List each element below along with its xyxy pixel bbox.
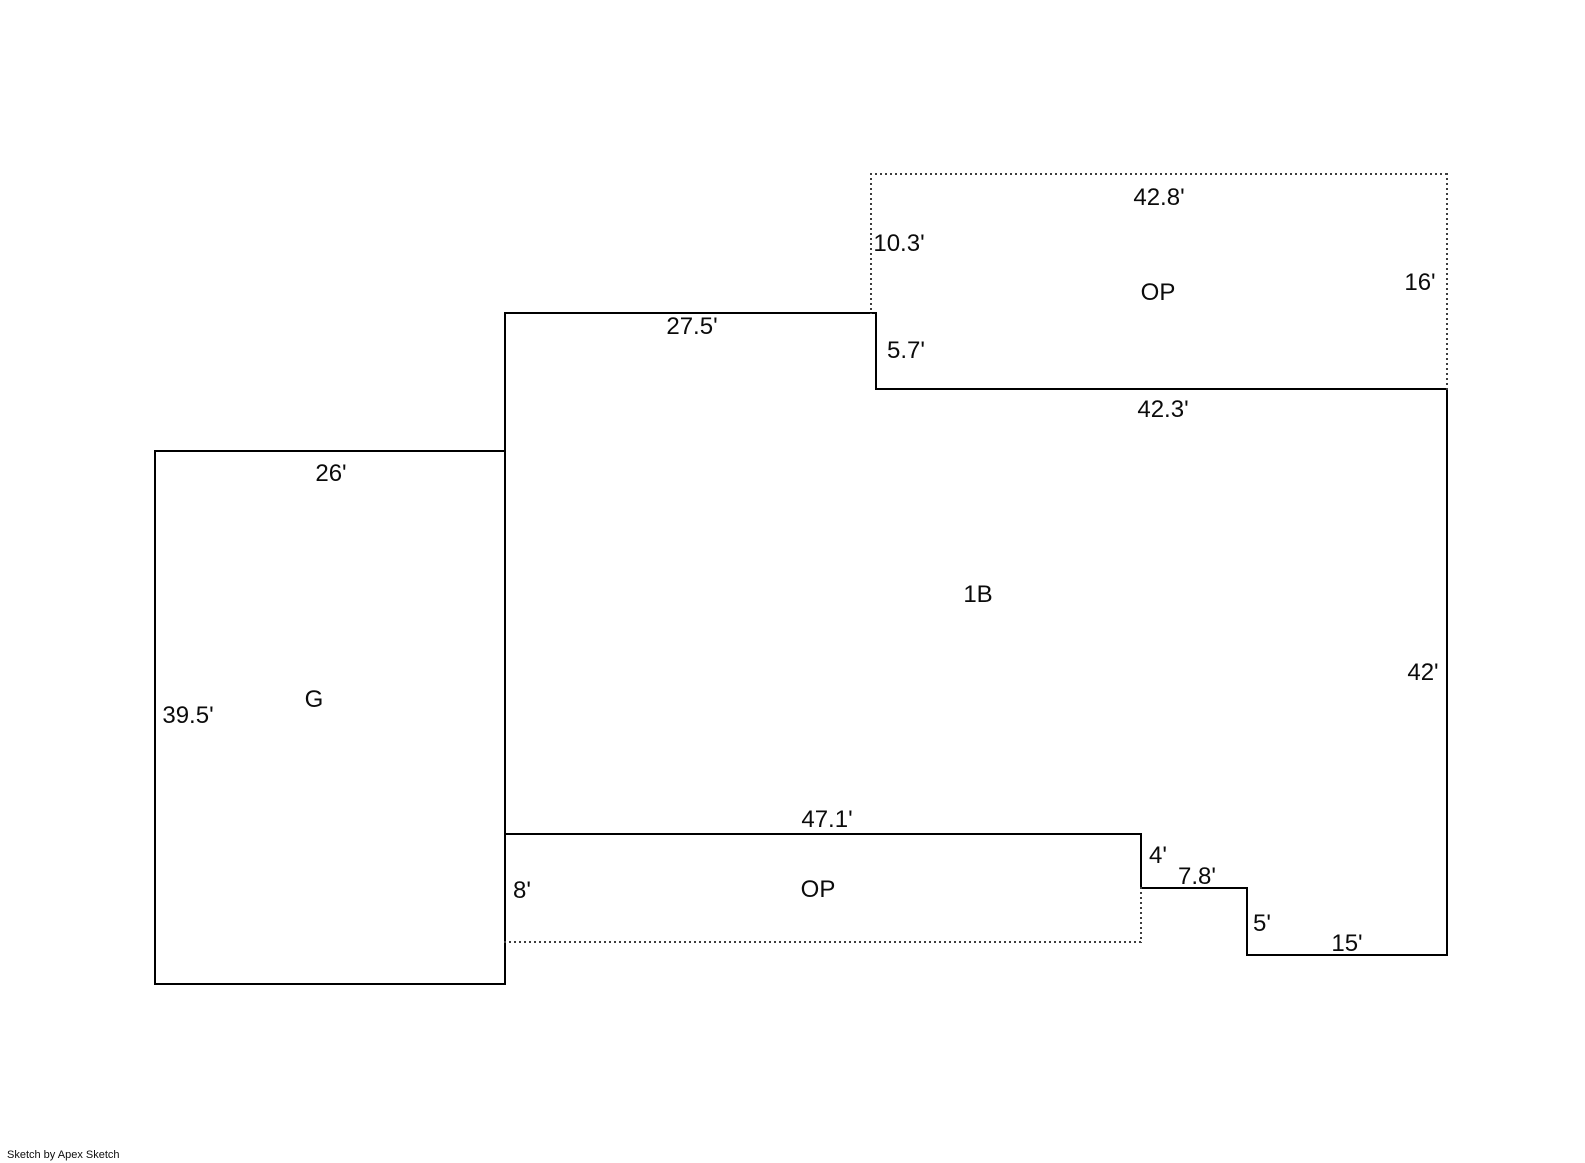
porch-lower-dotted-bottom <box>504 941 1142 943</box>
dim-porch-lower-top: 47.1' <box>801 808 852 832</box>
region-label-open-porch-lower: OP <box>801 878 836 902</box>
dim-first-story-right: 42' <box>1407 661 1438 685</box>
porch-upper-dotted-top <box>870 173 1448 175</box>
dim-first-story-right-jog: 5.7' <box>887 339 925 363</box>
dim-step-right-7-8: 7.8' <box>1178 865 1216 889</box>
dim-porch-lower-left: 8' <box>513 879 531 903</box>
wall-first-story-upper-right <box>875 388 1448 390</box>
footer-credit: Sketch by Apex Sketch <box>7 1149 120 1161</box>
porch-upper-dotted-left <box>870 173 872 314</box>
wall-first-story-left <box>504 312 506 985</box>
floor-plan-sketch: 42.8' 10.3' 16' 27.5' 5.7' 42.3' 26' 42'… <box>0 0 1585 1163</box>
wall-garage-bottom <box>154 983 506 985</box>
porch-upper-dotted-right <box>1446 173 1448 390</box>
wall-garage-top <box>154 450 506 452</box>
wall-first-story-right-jog <box>875 312 877 390</box>
dim-first-story-top: 27.5' <box>666 315 717 339</box>
wall-step-down-4 <box>1140 833 1142 889</box>
dim-porch-upper-right: 16' <box>1404 271 1435 295</box>
wall-porch-lower-top <box>504 833 1142 835</box>
dim-bottom-right: 15' <box>1331 932 1362 956</box>
dim-step-down-4: 4' <box>1149 844 1167 868</box>
dim-garage-top: 26' <box>315 462 346 486</box>
dim-step-down-5: 5' <box>1253 912 1271 936</box>
dim-first-story-upper-right: 42.3' <box>1137 398 1188 422</box>
porch-lower-dotted-right <box>1140 887 1142 943</box>
dim-porch-upper-top: 42.8' <box>1133 186 1184 210</box>
wall-step-down-5 <box>1246 887 1248 956</box>
wall-garage-left <box>154 450 156 985</box>
region-label-first-story: 1B <box>963 583 992 607</box>
region-label-open-porch-upper: OP <box>1141 281 1176 305</box>
region-label-garage: G <box>305 688 324 712</box>
dim-porch-upper-left: 10.3' <box>873 232 924 256</box>
wall-first-story-right <box>1446 388 1448 956</box>
dim-garage-left: 39.5' <box>162 704 213 728</box>
